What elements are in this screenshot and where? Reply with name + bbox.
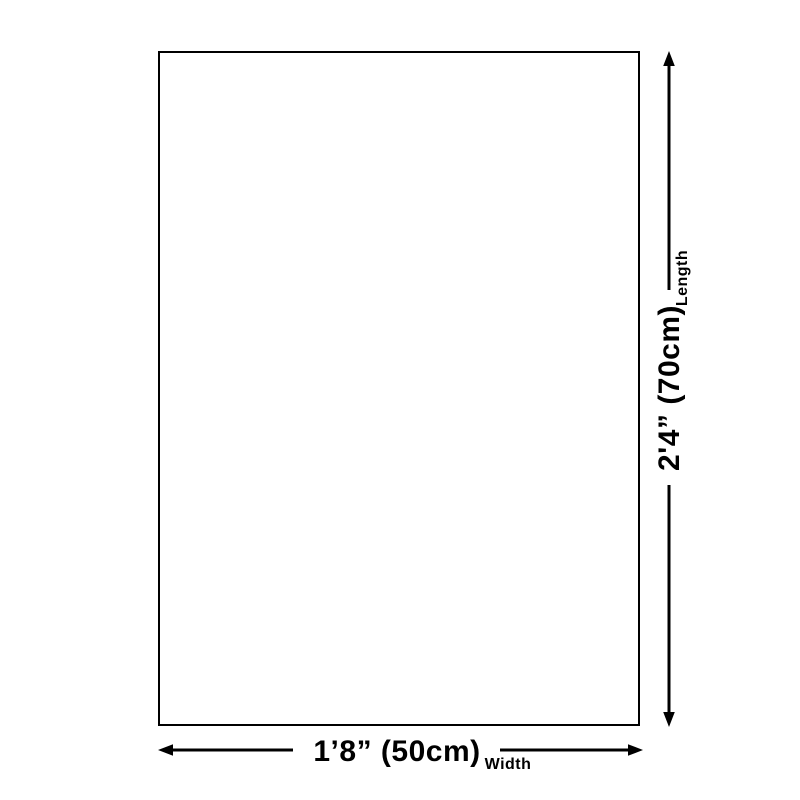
length-value: 2'4” (70cm) (653, 305, 687, 471)
length-label: Length (674, 250, 692, 306)
width-label: Width (485, 756, 532, 774)
width-value: 1’8” (50cm) (313, 735, 480, 769)
arrow-up-icon (663, 51, 675, 66)
dimension-diagram: 2'4” (70cm) Length 1’8” (50cm) Width (0, 0, 800, 800)
arrow-left-icon (158, 744, 173, 756)
arrow-right-icon (628, 744, 643, 756)
product-outline (158, 51, 640, 726)
arrow-down-icon (663, 712, 675, 727)
